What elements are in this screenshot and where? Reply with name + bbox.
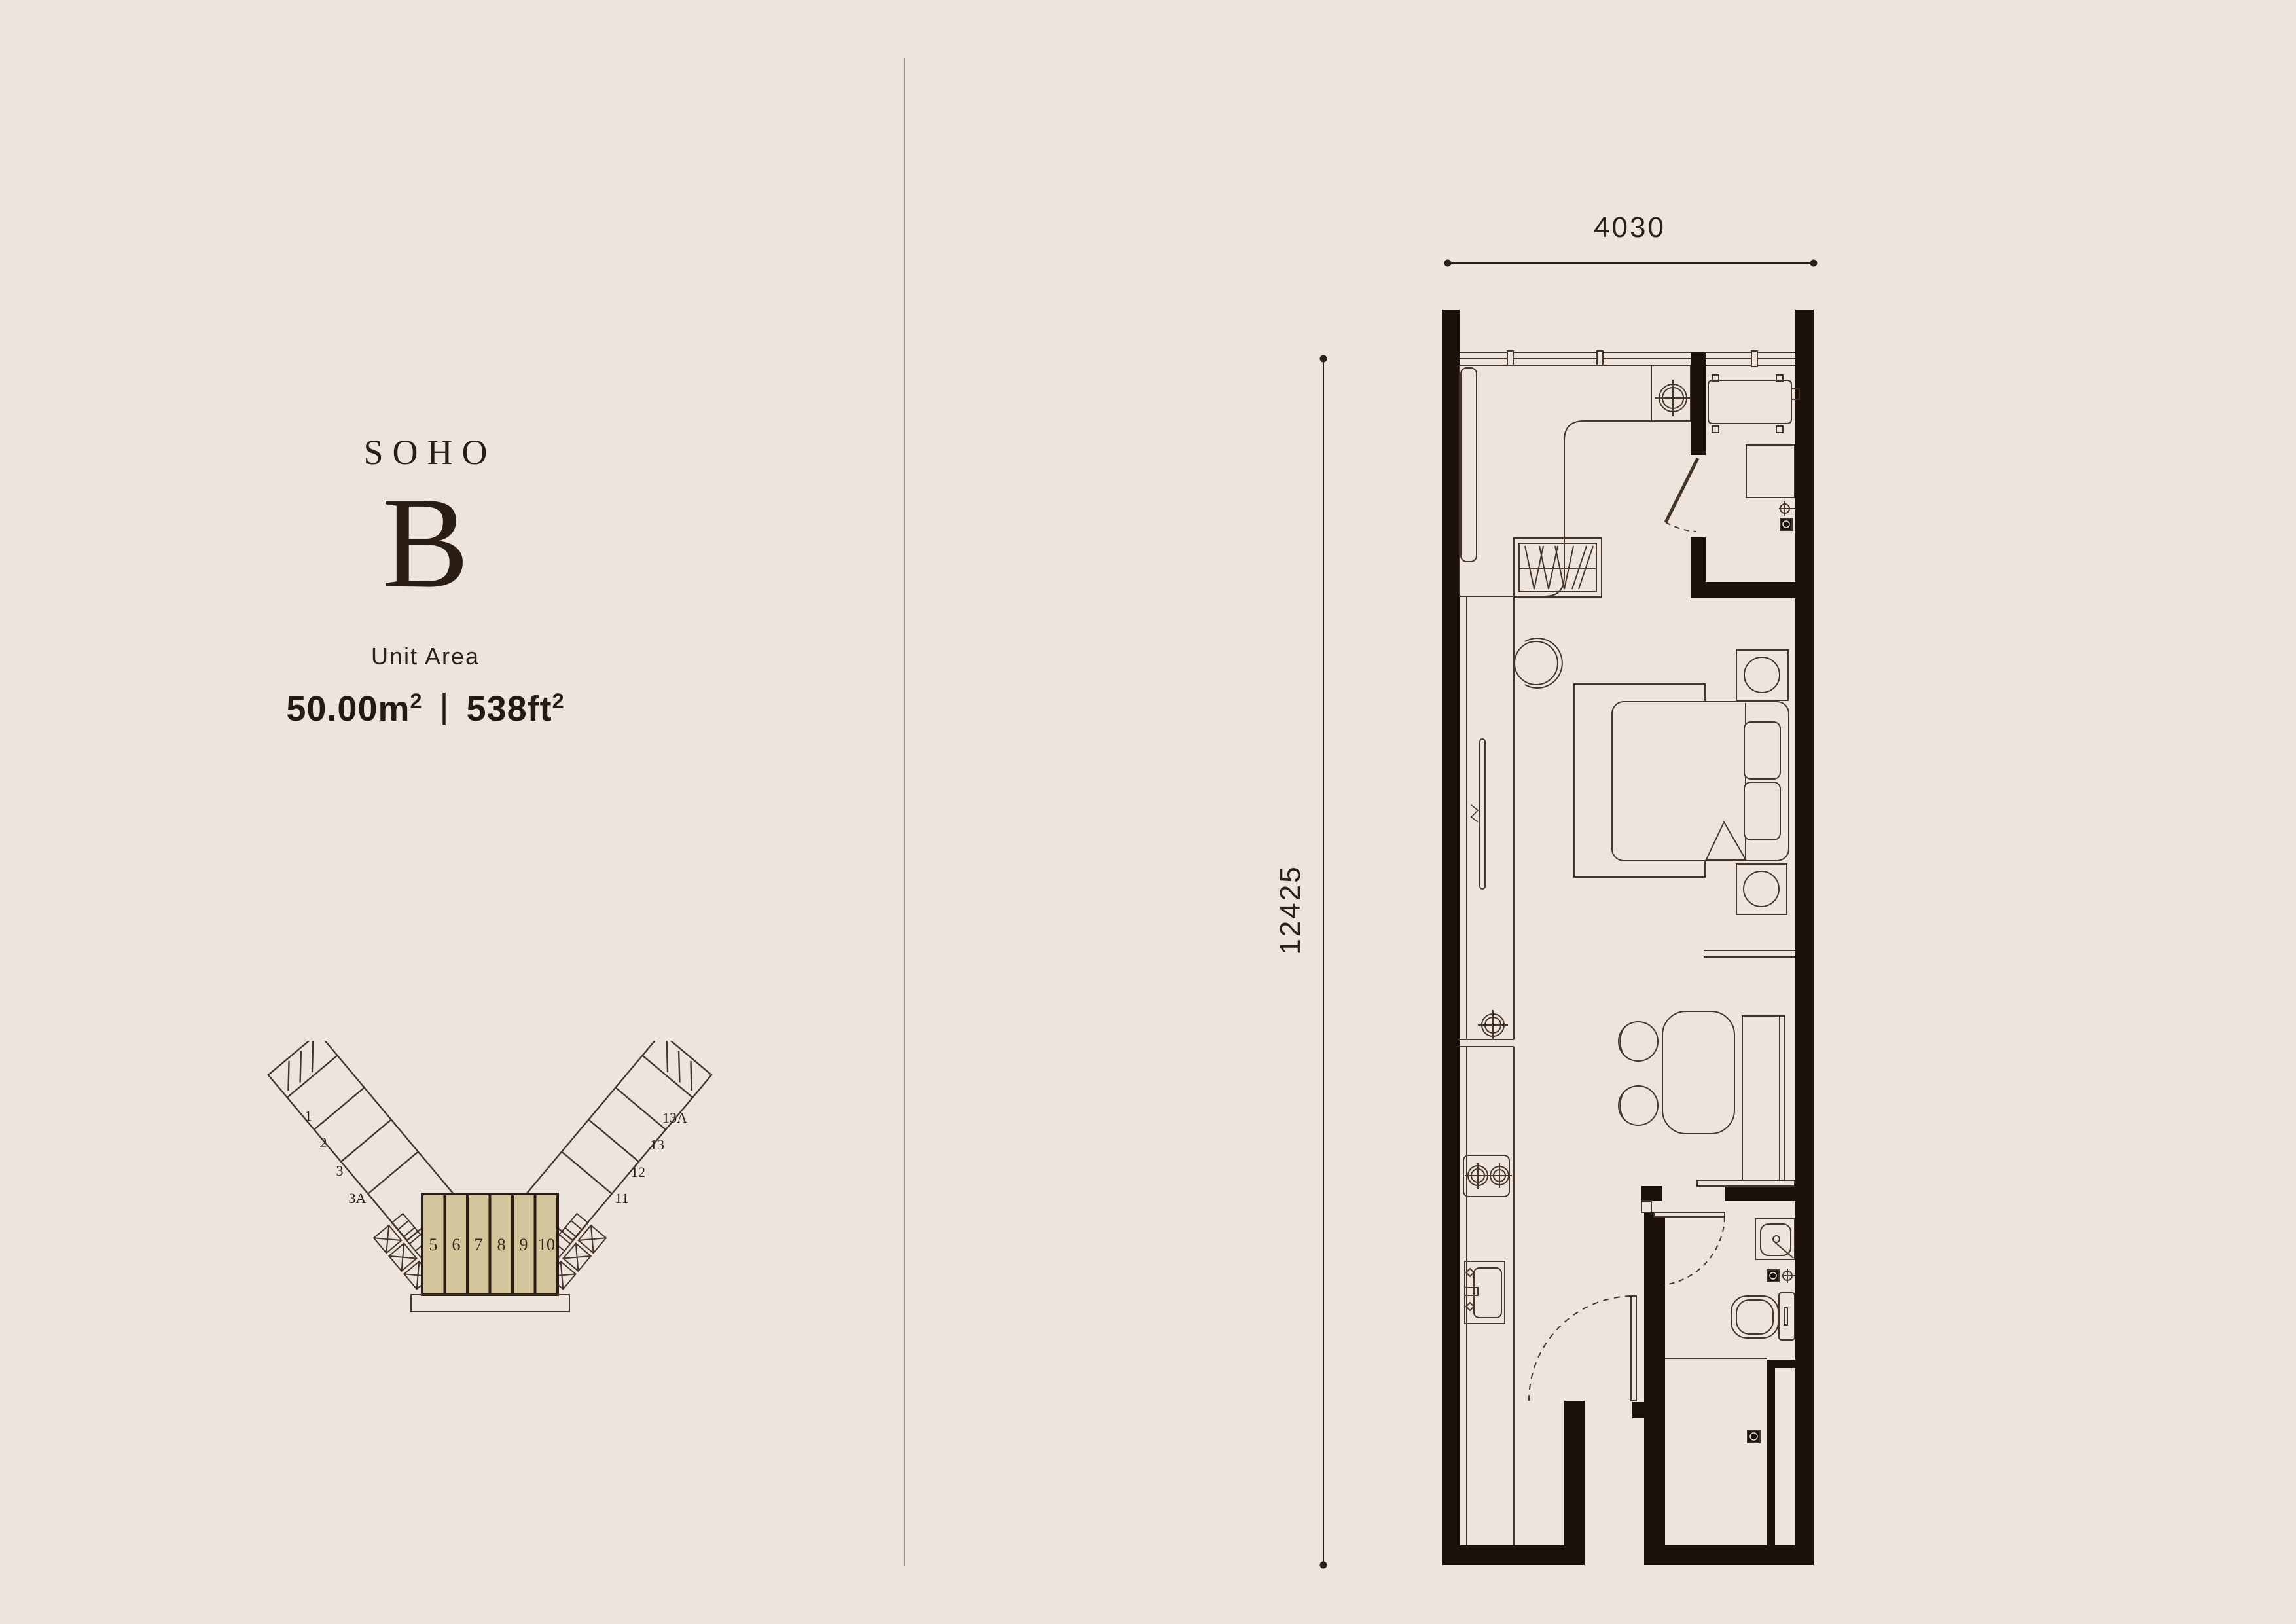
chair (1515, 638, 1562, 688)
key-plan: 1 2 3 3A 13A 13 12 11 5 6 7 8 9 10 (249, 1041, 759, 1342)
area-imperial-sup: 2 (552, 689, 565, 713)
floor-trap-icon (1748, 1430, 1760, 1443)
kitchen-counter (1458, 1039, 1514, 1545)
floor-plan: 4030 12425 (1237, 170, 1898, 1597)
dining-chair (1619, 1022, 1658, 1061)
tap-icon (1783, 1269, 1795, 1283)
unit-area-values: 50.00m2|538ft2 (196, 689, 655, 729)
keyplan-unit-label: 3A (349, 1190, 367, 1206)
right-wardrobe (1697, 950, 1795, 1186)
keyplan-center-unit: 10 (538, 1235, 555, 1254)
bar-sink-icon (1478, 1010, 1508, 1040)
keyplan-center-unit: 5 (429, 1235, 438, 1254)
keyplan-center-unit: 7 (475, 1235, 483, 1254)
bed (1612, 702, 1789, 861)
area-separator: | (440, 686, 450, 727)
keyplan-unit-label: 2 (320, 1134, 327, 1151)
keyplan-highlighted-units (422, 1194, 558, 1295)
keyplan-center-unit: 8 (497, 1235, 506, 1254)
toilet-icon (1731, 1293, 1795, 1340)
dimension-width: 4030 (1444, 211, 1817, 266)
keyplan-center-unit: 9 (520, 1235, 528, 1254)
dimension-height: 12425 (1274, 355, 1327, 1568)
ac-unit (1708, 375, 1799, 433)
tv-console (1460, 596, 1514, 1039)
unit-area-label: Unit Area (196, 643, 655, 670)
area-metric-unit: m (378, 689, 410, 729)
area-imperial-unit: ft (528, 689, 552, 729)
water-heater (1746, 445, 1795, 497)
floor-drain-icon (1780, 518, 1792, 530)
tv-icon (1471, 739, 1485, 889)
stove-icon (1463, 1155, 1512, 1197)
svg-text:4030: 4030 (1594, 211, 1666, 244)
top-counter (1460, 365, 1691, 596)
wash-basin-icon (1755, 1219, 1795, 1259)
keyplan-unit-label: 13A (662, 1110, 687, 1126)
svg-text:12425: 12425 (1274, 865, 1306, 954)
keyplan-unit-label: 11 (615, 1190, 628, 1206)
unit-letter: B (196, 478, 655, 609)
utility-door (1666, 458, 1698, 532)
area-metric-sup: 2 (410, 689, 423, 713)
title-block: SOHO B Unit Area 50.00m2|538ft2 (196, 432, 655, 729)
floor-drain-icon (1767, 1270, 1779, 1282)
keyplan-center-unit: 6 (452, 1235, 461, 1254)
dining-chair (1619, 1086, 1658, 1125)
keyplan-corridor (411, 1295, 569, 1312)
window-band (1460, 351, 1795, 367)
kitchen-sink-icon (1465, 1261, 1505, 1324)
area-imperial-num: 538 (467, 689, 528, 729)
keyplan-unit-label: 3 (336, 1163, 344, 1179)
vertical-divider (904, 58, 905, 1566)
dining-table (1662, 1011, 1734, 1134)
area-metric-num: 50.00 (286, 689, 378, 729)
nightstand-bottom (1736, 864, 1787, 914)
nightstand-top (1736, 650, 1788, 700)
keyplan-unit-label: 12 (631, 1164, 645, 1180)
tap-icon (1779, 501, 1795, 516)
keyplan-unit-label: 13 (650, 1136, 664, 1153)
keyplan-unit-label: 1 (305, 1108, 312, 1124)
brochure-page: SOHO B Unit Area 50.00m2|538ft2 (0, 0, 2296, 1624)
brand-title: SOHO (196, 432, 655, 473)
entry-door (1529, 1296, 1636, 1401)
